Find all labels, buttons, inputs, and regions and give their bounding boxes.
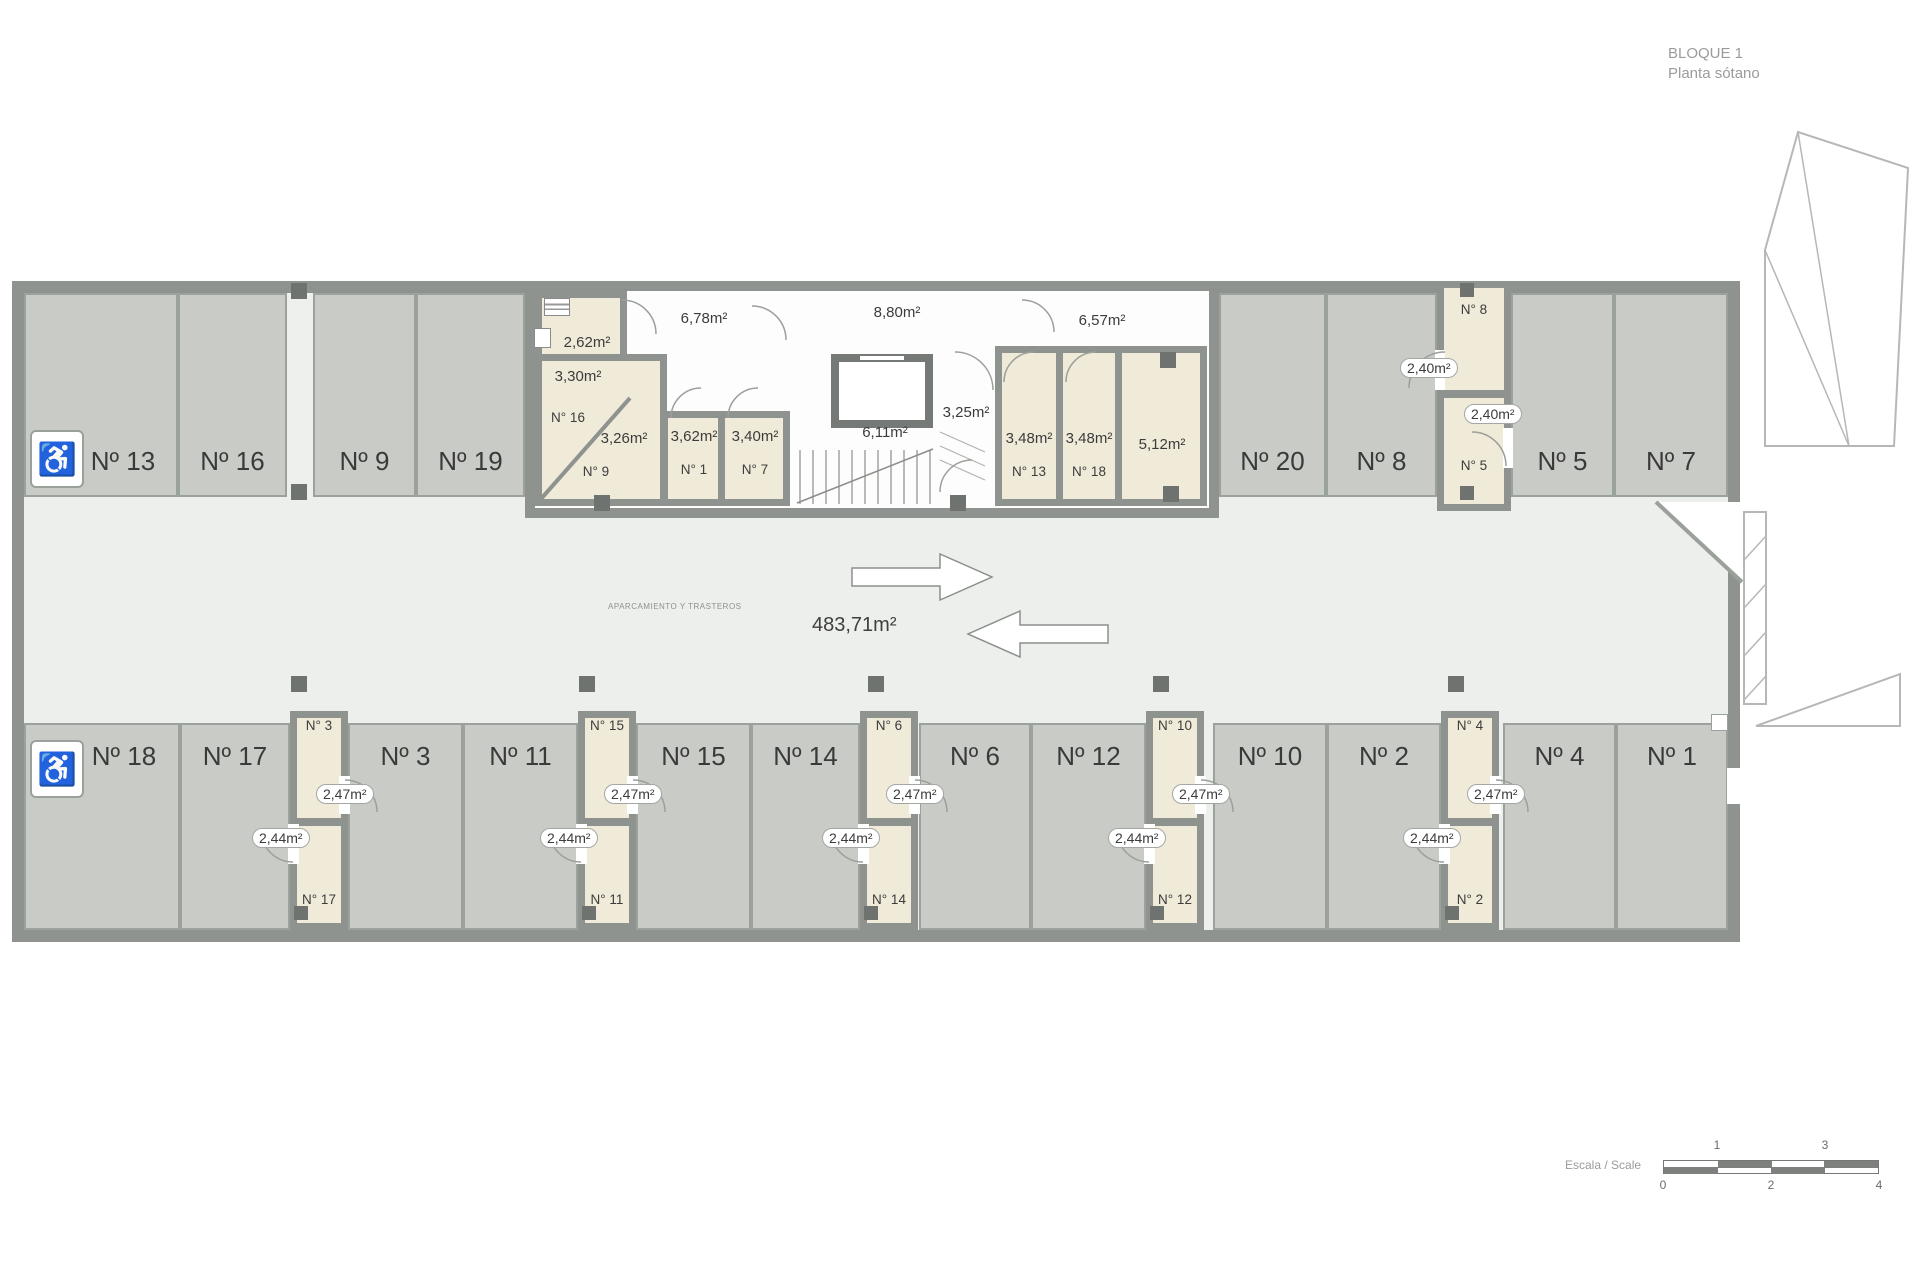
parking-space: Nº 15 (636, 723, 751, 930)
divider-wall (1446, 818, 1494, 826)
parking-label: Nº 6 (921, 741, 1029, 772)
parking-space: Nº 19 (416, 293, 525, 497)
storeroom-label: N° 15 (580, 718, 634, 733)
parking-label: Nº 9 (315, 446, 414, 477)
parking-label: Nº 20 (1221, 446, 1324, 477)
area-label: 3,26m² (592, 430, 656, 447)
parking-space: Nº 8 (1326, 293, 1437, 497)
floor-plan-canvas: BLOQUE 1 Planta sótano Nº 13 ♿ Nº 16 Nº … (0, 0, 1920, 1280)
storeroom (1115, 346, 1207, 506)
pillar (1153, 676, 1169, 692)
area-chip: 2,47m² (1172, 784, 1230, 804)
area-chip: 2,47m² (1467, 784, 1525, 804)
parking-space: Nº 20 (1219, 293, 1326, 497)
elevator-door (860, 356, 904, 360)
door-mark (1711, 714, 1728, 731)
scale-cell (1664, 1167, 1718, 1174)
parking-space: Nº 2 (1327, 723, 1441, 930)
parking-label: Nº 4 (1505, 741, 1614, 772)
pillar (950, 495, 966, 511)
pillar (291, 283, 307, 299)
pillar (582, 906, 596, 920)
scale-tick: 1 (1707, 1138, 1727, 1152)
parking-label: Nº 10 (1215, 741, 1325, 772)
pillar (1150, 906, 1164, 920)
storeroom-label: N° 16 (540, 410, 596, 425)
parking-label: Nº 3 (350, 741, 461, 772)
area-chip: 2,44m² (1108, 828, 1166, 848)
parking-space: Nº 16 (178, 293, 287, 497)
storeroom-label: N° 8 (1439, 302, 1509, 317)
storeroom-label: N° 4 (1443, 718, 1497, 733)
parking-label: Nº 1 (1618, 741, 1726, 772)
parking-label: Nº 11 (465, 741, 576, 772)
area-label: 3,48m² (1000, 430, 1058, 447)
divider-wall (1442, 390, 1506, 398)
pillar (291, 484, 307, 500)
area-chip: 2,40m² (1400, 358, 1458, 378)
storeroom-label: N° 12 (1148, 892, 1202, 907)
meter-box-icon (534, 328, 551, 348)
parking-label: Nº 16 (180, 446, 285, 477)
divider-wall (583, 818, 631, 826)
parking-space: Nº 11 (463, 723, 578, 930)
area-label: 3,25m² (934, 404, 998, 421)
parking-space: Nº 7 (1614, 293, 1728, 497)
storeroom-label: N° 3 (292, 718, 346, 733)
storeroom (1056, 346, 1122, 506)
storeroom-label: N° 9 (570, 464, 622, 479)
parking-space: Nº 17 (180, 723, 290, 930)
scale-tick: 4 (1869, 1178, 1889, 1192)
area-chip: 2,44m² (252, 828, 310, 848)
divider-wall (865, 818, 913, 826)
floor-subtitle: Planta sótano (1668, 64, 1760, 84)
handicap-icon: ♿ (30, 430, 84, 488)
pillar (1160, 352, 1176, 368)
area-label: 6,78m² (664, 310, 744, 327)
elevator-shaft (831, 354, 933, 428)
pillar (1460, 283, 1474, 297)
parking-label: Nº 7 (1616, 446, 1726, 477)
handicap-icon: ♿ (30, 740, 84, 798)
wheelchair-glyph: ♿ (37, 750, 77, 788)
storeroom-label: N° 1 (666, 462, 722, 477)
scale-cell (1824, 1161, 1878, 1168)
drawing-title: BLOQUE 1 Planta sótano (1668, 44, 1760, 84)
storeroom-label: N° 10 (1148, 718, 1202, 733)
parking-label: Nº 15 (638, 741, 749, 772)
wheelchair-glyph: ♿ (37, 440, 77, 478)
parking-label: Nº 12 (1033, 741, 1144, 772)
area-chip: 2,44m² (1403, 828, 1461, 848)
pillar (291, 676, 307, 692)
area-label: 2,62m² (551, 334, 623, 351)
scale-tick: 2 (1761, 1178, 1781, 1192)
storeroom (718, 411, 790, 506)
divider-wall (295, 818, 343, 826)
area-chip: 2,44m² (822, 828, 880, 848)
pillar (864, 906, 878, 920)
parking-label: Nº 17 (182, 741, 288, 772)
storeroom-label: N° 17 (292, 892, 346, 907)
area-label: 3,48m² (1060, 430, 1118, 447)
parking-space: Nº 14 (751, 723, 860, 930)
area-label: 8,80m² (852, 304, 942, 321)
area-label: 6,11m² (845, 424, 925, 441)
pillar (579, 676, 595, 692)
storeroom-label: N° 13 (1000, 464, 1058, 479)
aisle-caption: APARCAMIENTO Y TRASTEROS (608, 602, 742, 611)
pillar (1448, 676, 1464, 692)
pillar (1460, 486, 1474, 500)
area-label: 3,62m² (666, 428, 722, 445)
storeroom-label: N° 6 (862, 718, 916, 733)
parking-label: Nº 2 (1329, 741, 1439, 772)
scale-cell (1771, 1167, 1825, 1174)
area-chip: 2,47m² (316, 784, 374, 804)
storeroom-label: N° 7 (724, 462, 786, 477)
parking-label: Nº 8 (1328, 446, 1435, 477)
area-label: 6,57m² (1062, 312, 1142, 329)
pillar (294, 906, 308, 920)
structural-joint (287, 293, 313, 497)
area-chip: 2,44m² (540, 828, 598, 848)
electrical-panel-icon (544, 298, 570, 316)
parking-space: Nº 4 (1503, 723, 1616, 930)
parking-space: Nº 9 (313, 293, 416, 497)
parking-label: Nº 19 (418, 446, 523, 477)
storeroom-label: N° 11 (580, 892, 634, 907)
divider-wall (1151, 818, 1199, 826)
parking-space: Nº 12 (1031, 723, 1146, 930)
storeroom (995, 346, 1063, 506)
storeroom (661, 411, 725, 506)
parking-space: Nº 1 (1616, 723, 1728, 930)
scale-label: Escala / Scale (1565, 1158, 1641, 1172)
parking-space: Nº 10 (1213, 723, 1327, 930)
pillar (1445, 906, 1459, 920)
area-label: 3,30m² (542, 368, 614, 385)
scale-cell (1718, 1161, 1772, 1168)
pillar (868, 676, 884, 692)
area-chip: 2,40m² (1464, 404, 1522, 424)
pillar (1163, 486, 1179, 502)
exterior-ramp-strip (1744, 512, 1766, 704)
parking-space: Nº 5 (1511, 293, 1614, 497)
parking-space: Nº 6 (919, 723, 1031, 930)
exterior-triangle-outline (1756, 674, 1900, 726)
storeroom-label: N° 18 (1060, 464, 1118, 479)
exterior-roof-outline (1765, 132, 1908, 446)
scale-tick: 0 (1653, 1178, 1673, 1192)
scale-bar: Escala / Scale 1 3 0 2 4 (1560, 1130, 1900, 1210)
storeroom-label: N° 2 (1443, 892, 1497, 907)
parking-label: Nº 14 (753, 741, 858, 772)
scale-tick: 3 (1815, 1138, 1835, 1152)
storeroom-label: N° 14 (862, 892, 916, 907)
parking-space: Nº 3 (348, 723, 463, 930)
area-label: 3,40m² (724, 428, 786, 445)
area-chip: 2,47m² (886, 784, 944, 804)
storeroom-label: N° 5 (1439, 458, 1509, 473)
pillar (594, 495, 610, 511)
block-title: BLOQUE 1 (1668, 44, 1760, 64)
aisle-area-label: 483,71m² (812, 614, 897, 637)
wall-opening (1727, 768, 1740, 804)
area-label: 5,12m² (1128, 436, 1196, 453)
parking-label: Nº 5 (1513, 446, 1612, 477)
area-chip: 2,47m² (604, 784, 662, 804)
